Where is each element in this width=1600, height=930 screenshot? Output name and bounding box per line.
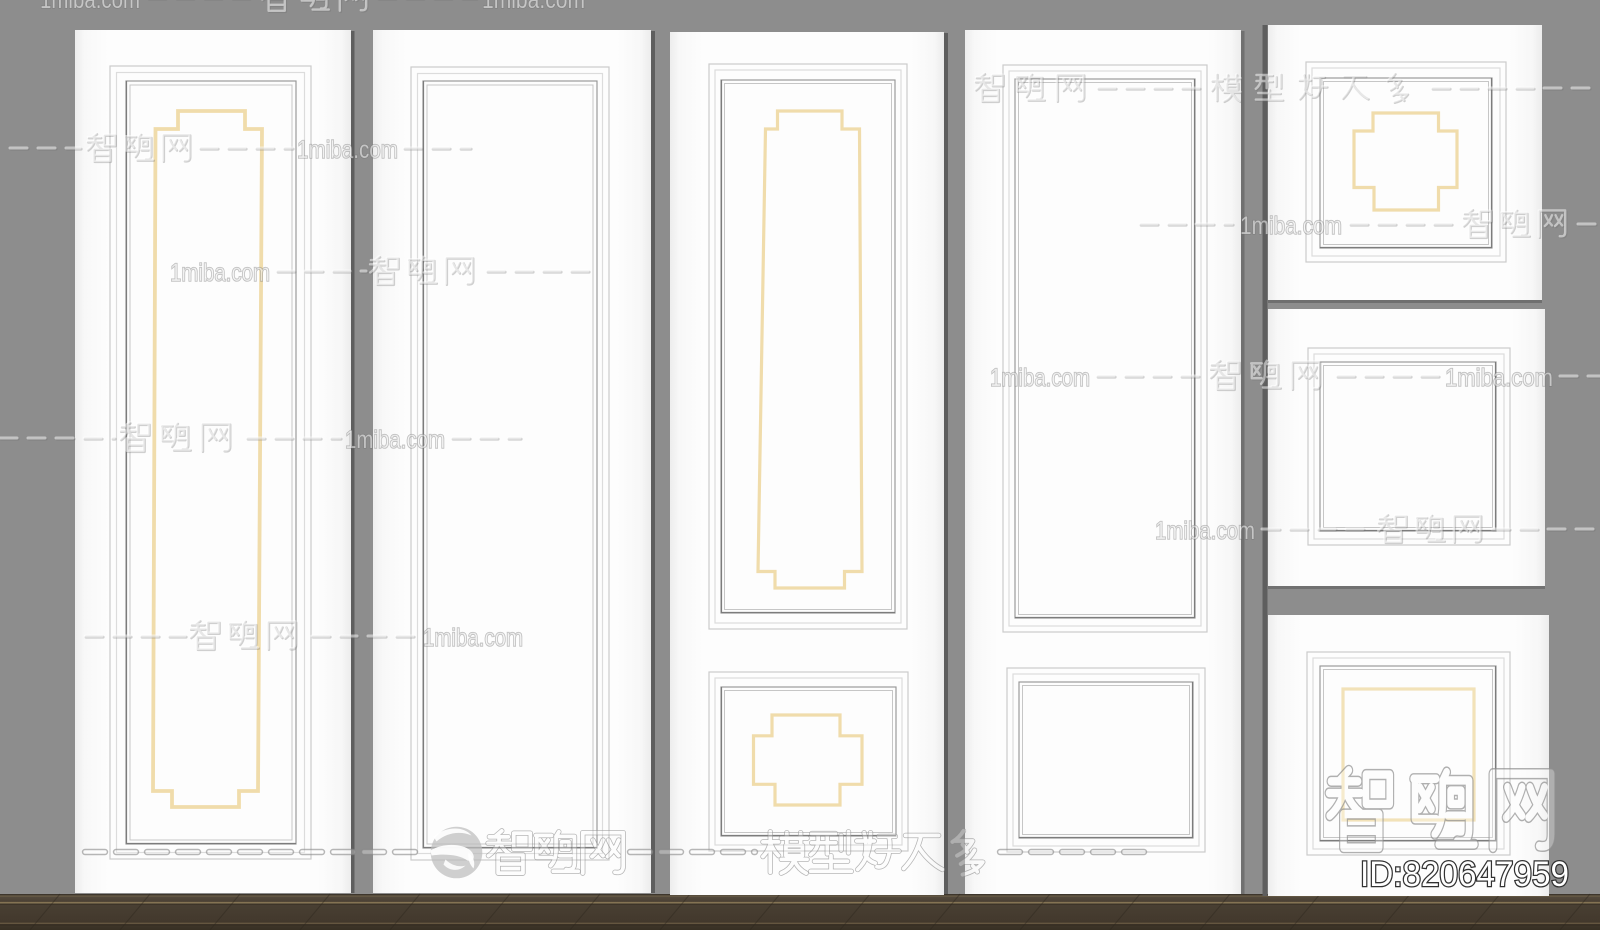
svg-text:1miba.com: 1miba.com	[297, 136, 398, 164]
svg-text:1miba.com: 1miba.com	[482, 0, 585, 14]
svg-text:1miba.com: 1miba.com	[1155, 517, 1255, 545]
svg-text:1miba.com: 1miba.com	[423, 624, 523, 652]
svg-text:1miba.com: 1miba.com	[990, 364, 1090, 392]
svg-text:1miba.com: 1miba.com	[170, 259, 270, 287]
svg-text:1miba.com: 1miba.com	[345, 426, 445, 454]
svg-text:ID:820647959: ID:820647959	[1360, 855, 1569, 894]
svg-text:1miba.com: 1miba.com	[40, 0, 140, 14]
svg-text:1miba.com: 1miba.com	[1445, 364, 1553, 392]
svg-text:1miba.com: 1miba.com	[1240, 212, 1342, 240]
